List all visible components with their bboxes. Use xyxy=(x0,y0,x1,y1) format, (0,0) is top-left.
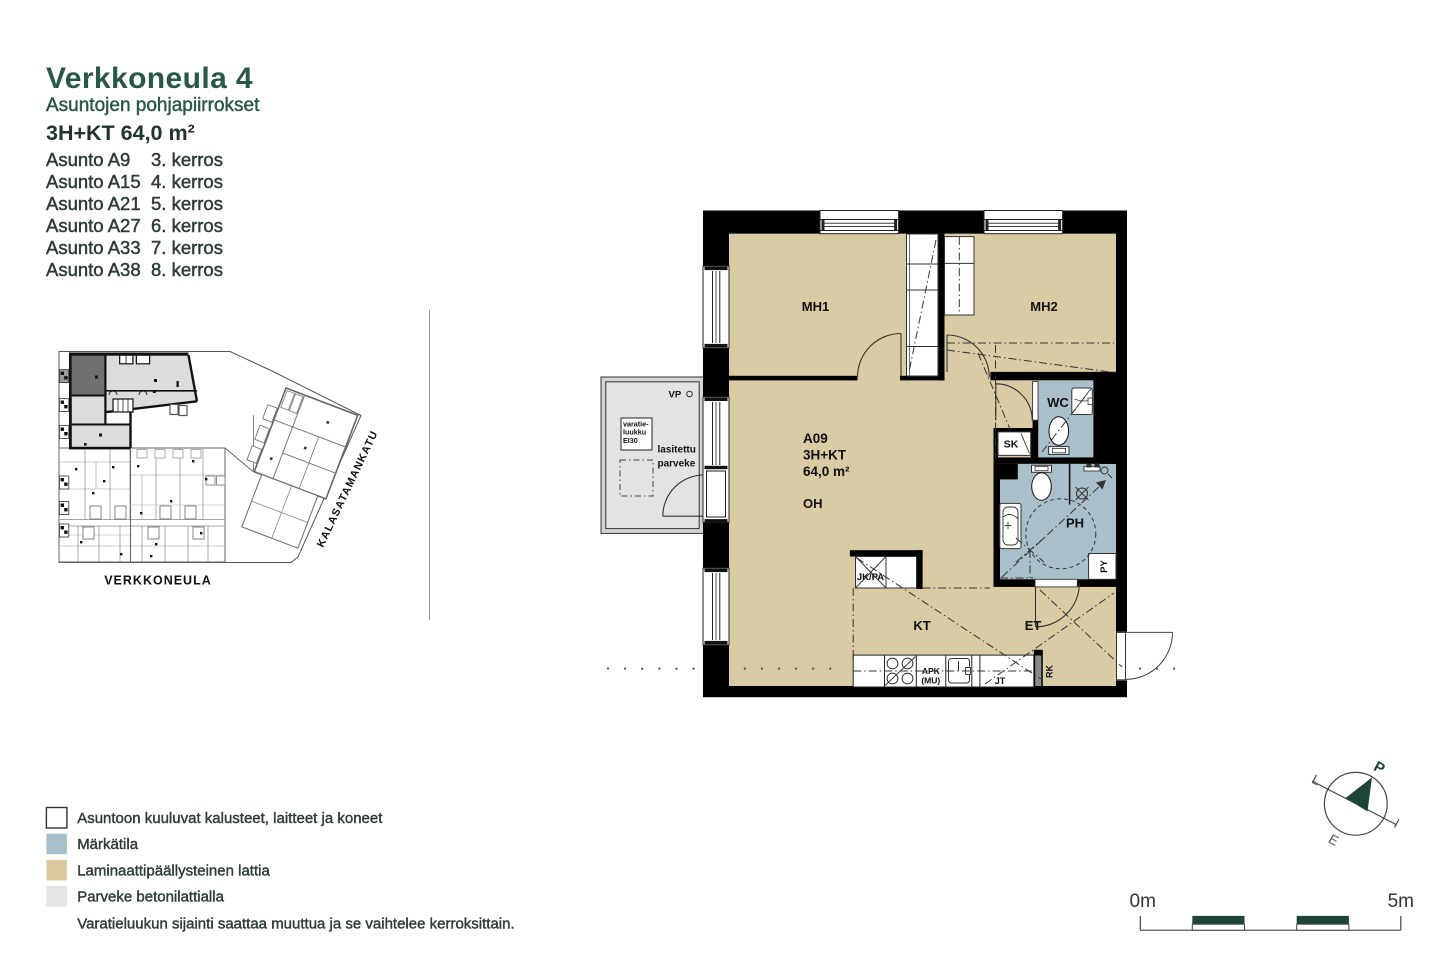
svg-text:parveke: parveke xyxy=(658,459,696,470)
svg-text:JT: JT xyxy=(995,676,1006,686)
svg-text:PY: PY xyxy=(1099,560,1110,573)
svg-text:PH: PH xyxy=(1066,516,1084,531)
svg-text:Asunto A21: Asunto A21 xyxy=(46,193,141,214)
svg-text:RK: RK xyxy=(1045,665,1055,678)
svg-text:3H+KT: 3H+KT xyxy=(803,448,847,463)
svg-text:MH2: MH2 xyxy=(1030,299,1057,314)
svg-text:P: P xyxy=(1371,758,1388,778)
svg-text:Märkätila: Märkätila xyxy=(77,836,139,853)
svg-text:Asunto A38: Asunto A38 xyxy=(46,259,141,280)
svg-text:5m: 5m xyxy=(1388,891,1414,912)
svg-text:MH1: MH1 xyxy=(802,299,829,314)
svg-text:Asuntoon kuuluvat kalusteet, l: Asuntoon kuuluvat kalusteet, laitteet ja… xyxy=(77,810,383,827)
svg-text:Asunto A33: Asunto A33 xyxy=(46,237,141,258)
svg-text:A09: A09 xyxy=(803,431,828,446)
svg-text:KT: KT xyxy=(913,618,930,633)
svg-text:SK: SK xyxy=(1004,439,1019,451)
svg-text:4. kerros: 4. kerros xyxy=(151,171,223,192)
svg-text:lasitettu: lasitettu xyxy=(658,445,696,456)
svg-text:OH: OH xyxy=(803,496,823,511)
svg-text:Laminaattipäällysteinen lattia: Laminaattipäällysteinen lattia xyxy=(77,862,270,879)
svg-text:3. kerros: 3. kerros xyxy=(151,149,223,170)
svg-text:EI30: EI30 xyxy=(623,436,638,445)
svg-text:64,0 m²: 64,0 m² xyxy=(803,464,850,479)
svg-text:3H+KT 64,0 m²: 3H+KT 64,0 m² xyxy=(46,121,195,145)
svg-text:Asunto A27: Asunto A27 xyxy=(46,215,141,236)
svg-text:WC: WC xyxy=(1047,395,1069,410)
svg-text:7. kerros: 7. kerros xyxy=(151,237,223,258)
svg-text:VERKKONEULA: VERKKONEULA xyxy=(104,574,212,588)
svg-text:0m: 0m xyxy=(1130,891,1156,912)
svg-text:Asunto A9: Asunto A9 xyxy=(46,149,130,170)
svg-text:5. kerros: 5. kerros xyxy=(151,193,223,214)
svg-text:6. kerros: 6. kerros xyxy=(151,215,223,236)
svg-text:VP: VP xyxy=(669,390,682,401)
svg-text:Verkkoneula 4: Verkkoneula 4 xyxy=(46,62,253,95)
svg-text:(MU): (MU) xyxy=(921,676,940,686)
svg-text:E: E xyxy=(1326,831,1341,848)
svg-text:Asuntojen pohjapiirrokset: Asuntojen pohjapiirrokset xyxy=(46,95,260,116)
svg-text:8. kerros: 8. kerros xyxy=(151,259,223,280)
svg-text:Parveke betonilattialla: Parveke betonilattialla xyxy=(77,889,224,906)
svg-text:Asunto A15: Asunto A15 xyxy=(46,171,141,192)
svg-text:ET: ET xyxy=(1025,618,1042,633)
svg-text:Varatieluukun sijainti saattaa: Varatieluukun sijainti saattaa muuttua j… xyxy=(77,915,514,932)
